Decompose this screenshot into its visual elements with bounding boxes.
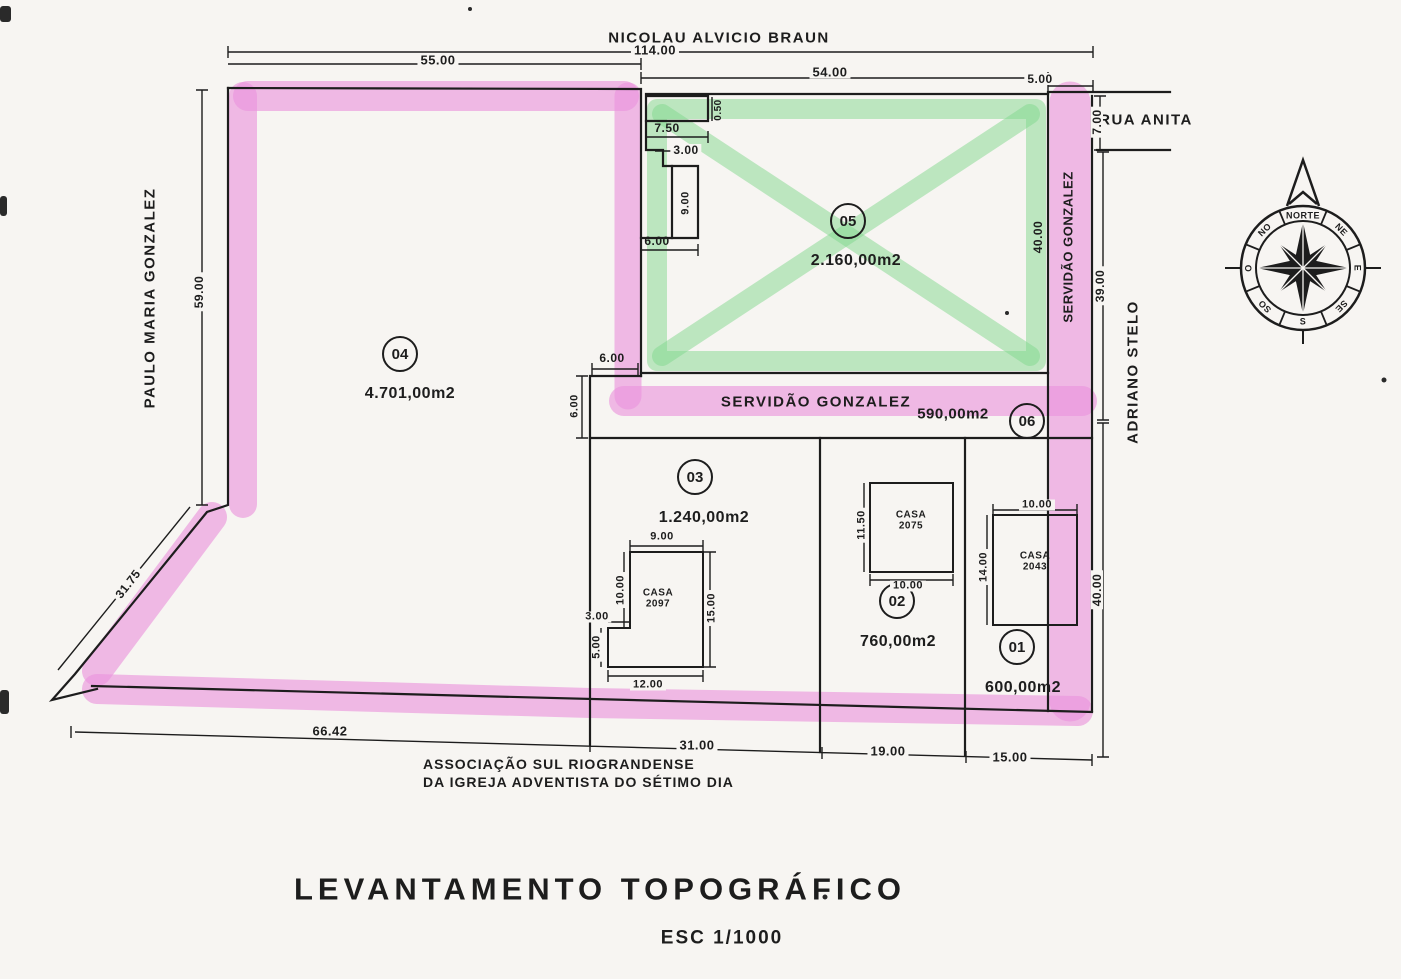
dim-c2043-top: 10.00: [1019, 500, 1055, 511]
dim-notch-600: 6.00: [644, 235, 669, 247]
street-name-right: ADRIANO STELO: [1126, 300, 1141, 444]
compass-e-label: E: [1353, 265, 1362, 272]
lot-03-area: 1.240,00m2: [659, 510, 749, 526]
dim-servidao-w: 6.00: [599, 352, 624, 364]
compass-norte-label: NORTE: [1286, 212, 1320, 221]
house-2043-casa: CASA: [1020, 552, 1050, 563]
dim-notch-900: 9.00: [681, 188, 692, 217]
dim-top-c: 5.00: [1024, 73, 1055, 85]
owner-bottom-line2: DA IGREJA ADVENTISTA DO SÉTIMO DIA: [423, 775, 734, 789]
survey-drawing-page: NICOLAU ALVICIO BRAUN PAULO MARIA GONZAL…: [0, 0, 1401, 979]
lot-06-number: 06: [1009, 403, 1045, 439]
lot-02-area: 760,00m2: [860, 634, 936, 650]
dim-top-b: 54.00: [809, 66, 850, 79]
dim-servidao-h: 6.00: [570, 394, 581, 417]
dim-c2043-left: 14.00: [979, 549, 990, 585]
dim-notch-050: 0.50: [714, 99, 724, 120]
dim-bottom-c: 19.00: [867, 745, 908, 758]
dim-right-b: 40.00: [1091, 571, 1103, 610]
dim-top-total: 114.00: [631, 44, 679, 57]
lot-01-area: 600,00m2: [985, 680, 1061, 696]
dim-lot05-east: 40.00: [1032, 221, 1044, 254]
lot-05-area: 2.160,00m2: [811, 253, 901, 269]
house-2097-casa: CASA: [643, 589, 673, 600]
dim-bottom-b: 31.00: [676, 739, 717, 752]
lot-04-area: 4.701,00m2: [365, 386, 455, 402]
dim-c2075-bottom: 10.00: [890, 581, 926, 592]
dim-rua-width: 7.00: [1091, 106, 1103, 137]
house-2043-number: 2043: [1020, 562, 1050, 573]
compass-o-label: O: [1245, 264, 1254, 272]
dim-c2097-right: 15.00: [707, 590, 718, 626]
owner-bottom-line1: ASSOCIAÇÃO SUL RIOGRANDENSE: [423, 757, 695, 771]
dim-top-a: 55.00: [417, 54, 458, 67]
dim-c2097-left: 10.00: [616, 572, 627, 608]
drawing-title: LEVANTAMENTO TOPOGRÁFICO: [294, 874, 906, 905]
dim-c2097-left2: 5.00: [592, 632, 603, 661]
servidao-label-horizontal: SERVIDÃO GONZALEZ: [721, 395, 911, 410]
dim-c2097-step: 3.00: [582, 612, 611, 623]
dim-right-a: 39.00: [1094, 267, 1106, 306]
dim-c2097-top: 9.00: [647, 532, 676, 543]
dim-c2075-left: 11.50: [857, 507, 868, 542]
servidao-area: 590,00m2: [917, 407, 989, 422]
house-2075-number: 2075: [896, 521, 926, 532]
house-2075-casa: CASA: [896, 511, 926, 522]
servidao-label-vertical: SERVIDÃO GONZALEZ: [1062, 171, 1075, 322]
dim-notch-300: 3.00: [670, 144, 701, 156]
dim-bottom-d: 15.00: [989, 751, 1030, 764]
drawing-scale: ESC 1/1000: [661, 929, 783, 948]
lot-05-number: 05: [830, 203, 866, 239]
dim-c2097-bottom: 12.00: [630, 680, 666, 691]
house-label-2097: CASA 2097: [643, 589, 673, 610]
compass-s-label: S: [1300, 318, 1307, 327]
dim-bottom-a: 66.42: [309, 725, 350, 738]
dim-left-a: 59.00: [193, 273, 205, 312]
lot-01-number: 01: [999, 629, 1035, 665]
street-name-rua-anita: RUA ANITA: [1099, 113, 1193, 128]
lot-04-number: 04: [382, 336, 418, 372]
house-label-2043: CASA 2043: [1020, 552, 1050, 573]
house-2097-number: 2097: [643, 599, 673, 610]
street-name-left: PAULO MARIA GONZALEZ: [143, 188, 158, 409]
dim-notch-750: 7.50: [654, 122, 679, 134]
house-label-2075: CASA 2075: [896, 511, 926, 532]
lot-03-number: 03: [677, 459, 713, 495]
